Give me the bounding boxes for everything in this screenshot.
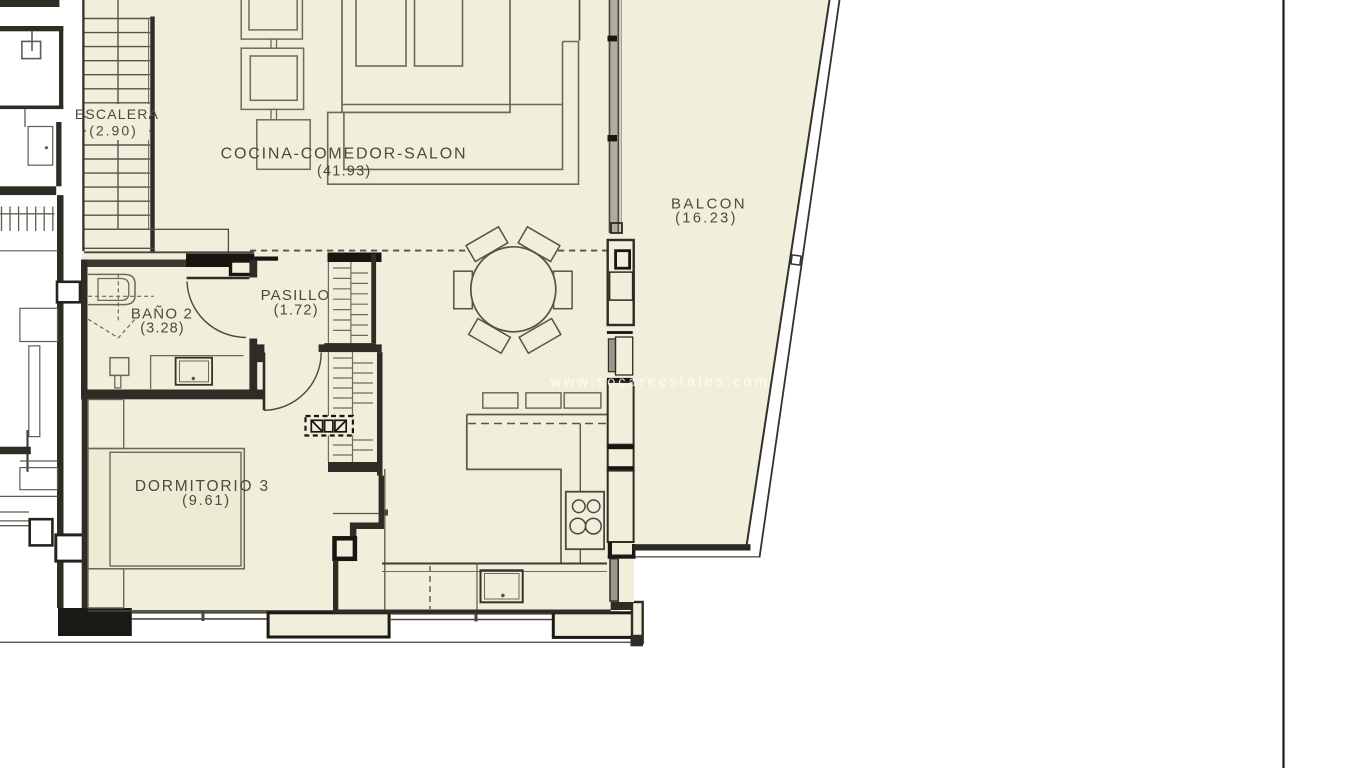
svg-text:www.socareestates.com: www.socareestates.com [549, 375, 769, 391]
svg-text:ESCALERA: ESCALERA [75, 106, 159, 122]
svg-text:(3.28): (3.28) [140, 321, 184, 337]
svg-text:PASILLO: PASILLO [261, 287, 331, 304]
svg-text:(9.61): (9.61) [182, 493, 231, 509]
svg-text:COCINA-COMEDOR-SALON: COCINA-COMEDOR-SALON [221, 146, 468, 163]
svg-text:(2.90): (2.90) [89, 123, 138, 139]
svg-text:(1.72): (1.72) [274, 303, 319, 319]
svg-text:(16.23): (16.23) [675, 211, 738, 227]
svg-text:(41.93): (41.93) [317, 164, 371, 180]
